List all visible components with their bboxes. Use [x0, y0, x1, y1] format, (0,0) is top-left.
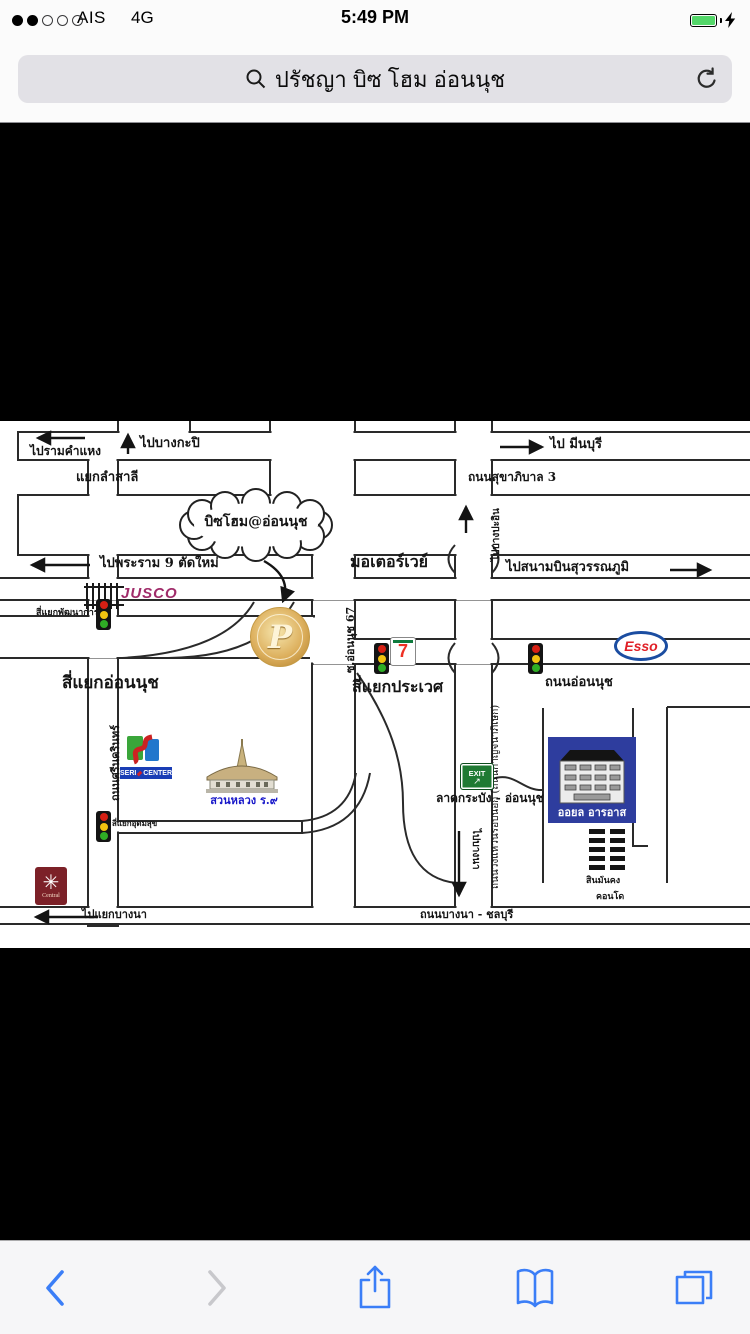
suan-luang-pavilion-icon	[203, 737, 281, 795]
label-to-bangna: ไปบางนา	[470, 829, 481, 870]
battery-indicator	[690, 12, 736, 28]
bookmarks-button[interactable]	[507, 1260, 563, 1316]
label-motorway: มอเตอร์เวย์	[350, 553, 428, 571]
label-oil-building: ออยล อารอาส	[558, 806, 627, 819]
label-to-bangpain: ไปบางปะอิน	[491, 508, 502, 561]
status-bar: AIS 4G 5:49 PM	[0, 0, 750, 42]
label-condo: คอนโด	[596, 893, 624, 903]
label-udomsuk: สี่แยกอุดมสุข	[112, 819, 157, 828]
label-soi-onnut67: ซ.อ่อนนุช 67	[345, 607, 357, 673]
label-onnut-intersection: สี่แยกอ่อนนุช	[62, 674, 159, 693]
label-phatthanakan: สี่แยกพัฒนาการ	[36, 609, 99, 619]
label-to-ramkhamhaeng: ไปรามคำแหง	[30, 445, 101, 458]
label-to-rama9: ไปพระราม 9 ตัดใหม่	[100, 557, 219, 571]
label-ladkrabang-onnut: ลาดกระบัง - อ่อนนุช	[436, 792, 544, 805]
label-sukhaphiban3: ถนนสุขาภิบาล 3	[468, 471, 556, 484]
iphone-safari-screen: AIS 4G 5:49 PM ปรัชญา บิซ โฮม อ่อนนุช	[0, 0, 750, 1334]
seri-center-logo-icon	[126, 733, 162, 765]
search-icon	[245, 68, 267, 90]
address-search-field[interactable]: ปรัชญา บิซ โฮม อ่อนนุช	[18, 55, 732, 103]
label-to-minburi: ไป มีนบุรี	[550, 438, 602, 452]
label-to-suvarnabhumi: ไปสนามบินสุวรรณภูมิ	[506, 561, 629, 575]
seven-eleven-icon: 7	[390, 637, 416, 666]
back-button[interactable]	[28, 1260, 84, 1316]
label-to-bangkapi: ไปบางกะปิ	[140, 437, 200, 451]
reload-button[interactable]	[694, 66, 720, 92]
traffic-light-icon	[96, 599, 111, 630]
esso-logo: Esso	[614, 631, 668, 661]
letterbox-top	[0, 124, 750, 421]
label-bangna-chonburi-road: ถนนบางนา - ชลบุรี	[420, 909, 513, 921]
battery-icon	[690, 14, 717, 27]
label-bizhome-onnut: บิซโฮม@อ่อนนุช	[188, 515, 324, 530]
label-prawet-intersection: สี่แยกประเวศ	[352, 678, 443, 696]
charging-bolt-icon	[725, 12, 736, 28]
browser-top-chrome: AIS 4G 5:49 PM ปรัชญา บิซ โฮม อ่อนนุช	[0, 0, 750, 123]
prachya-bizhome-coin-logo: P	[250, 607, 310, 667]
traffic-light-icon	[374, 643, 389, 674]
traffic-light-icon	[96, 811, 111, 842]
label-condo-name: สินมั่นคง	[586, 877, 620, 887]
label-onnut-road: ถนนอ่อนนุช	[545, 676, 613, 690]
label-srinakarin-road: ถนนศรีนครินทร์	[110, 725, 122, 801]
condo-building-icon	[585, 827, 629, 875]
central-logo: ✳Central	[35, 867, 67, 905]
forward-button[interactable]	[188, 1260, 244, 1316]
label-suan-luang-park: สวนหลวง ร.๙	[205, 795, 283, 807]
safari-toolbar	[0, 1240, 750, 1334]
map-image[interactable]: ไปรามคำแหง ไปบางกะปิ แยกลำสาลี ไป มีนบุร…	[0, 421, 750, 948]
seri-center-logo-text: SERICENTER	[120, 767, 172, 779]
clock: 5:49 PM	[0, 7, 750, 28]
label-to-bangna-junction: ไปแยกบางนา	[82, 909, 147, 921]
jusco-logo: JUSCO	[121, 585, 178, 602]
label-lam-sali: แยกลำสาลี	[76, 471, 138, 485]
exit-sign-icon: EXIT↗	[460, 763, 494, 790]
oil-building-icon: ออยล อารอาส	[548, 737, 636, 823]
share-button[interactable]	[347, 1260, 403, 1316]
tabs-button[interactable]	[666, 1260, 722, 1316]
search-query-text: ปรัชญา บิซ โฮม อ่อนนุช	[275, 62, 505, 97]
letterbox-bottom	[0, 948, 750, 1240]
traffic-light-icon	[528, 643, 543, 674]
